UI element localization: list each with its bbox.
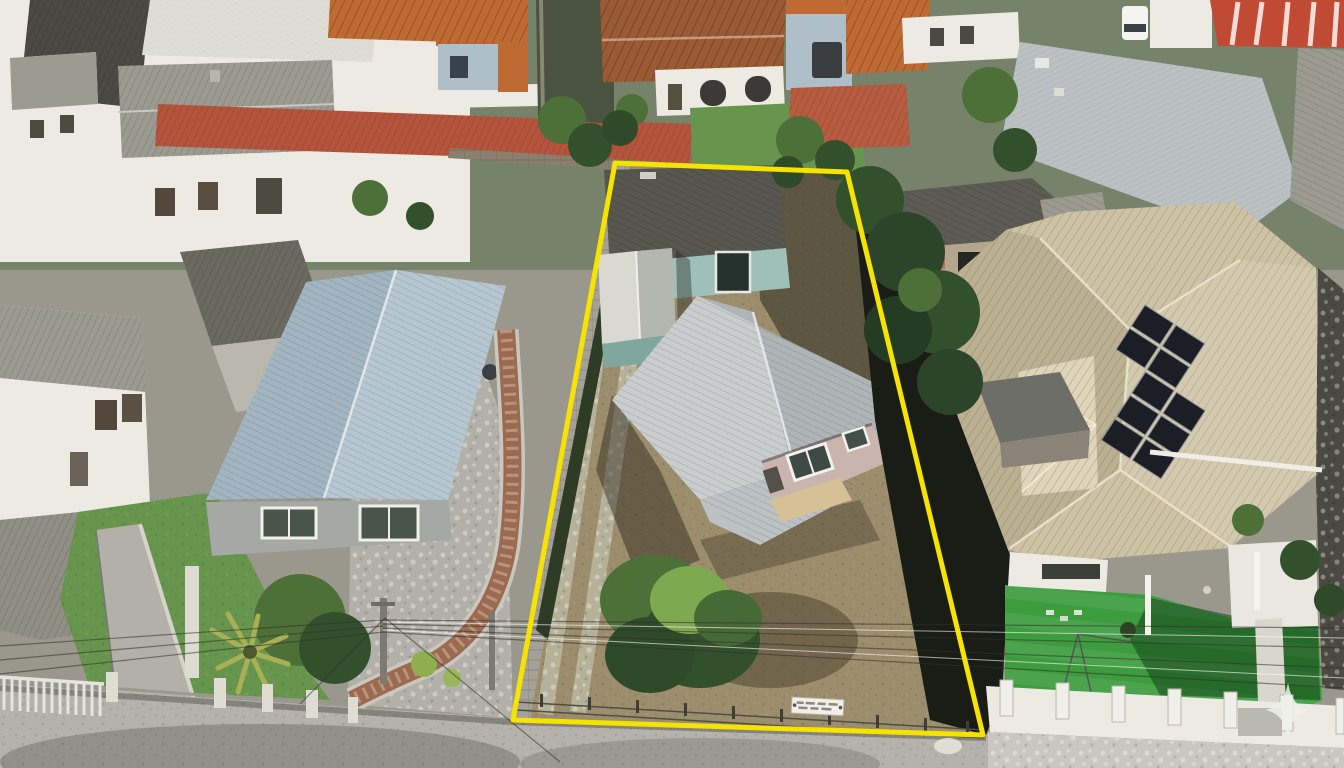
orange-roof-side	[498, 42, 528, 92]
tree	[962, 67, 1018, 123]
porch-plant	[1232, 504, 1264, 536]
side-walkway	[1255, 618, 1286, 706]
aerial-photo	[0, 0, 1344, 768]
shed-roof-lit	[598, 251, 640, 344]
chimney	[1035, 58, 1049, 68]
door	[70, 452, 88, 486]
satellite-dish	[482, 364, 498, 380]
small-pet	[1203, 586, 1211, 594]
window	[960, 26, 974, 44]
tall-gate-pillar	[185, 566, 199, 678]
rear-house-roof	[604, 165, 786, 264]
parked-vehicle	[812, 42, 842, 78]
left-house-window	[360, 506, 418, 540]
window	[256, 178, 282, 214]
window	[450, 56, 468, 78]
bush	[406, 202, 434, 230]
white-van	[1122, 6, 1148, 40]
fence-sign	[791, 697, 844, 716]
window	[30, 120, 44, 138]
utility-pole	[380, 598, 387, 684]
porch-column	[1254, 552, 1260, 610]
window	[155, 188, 175, 216]
garden-tree	[1280, 540, 1320, 580]
bush	[352, 180, 388, 216]
stone-wall-line	[541, 0, 543, 118]
chimney	[210, 70, 220, 82]
shed-roof-shade	[636, 248, 676, 340]
rear-house-door	[716, 252, 750, 292]
plant-ball	[1120, 622, 1136, 638]
left-house-window	[262, 508, 316, 538]
arched-window	[700, 80, 726, 106]
gray-roofs-right-edge	[1290, 48, 1344, 230]
small-gray-roof	[10, 52, 98, 110]
roof-patch	[640, 172, 656, 179]
orange-gable-roof	[436, 0, 528, 46]
pole-crossarm	[371, 602, 395, 606]
door	[668, 84, 682, 110]
window	[930, 28, 944, 46]
van-windshield	[1124, 24, 1146, 32]
orange-roof	[328, 0, 455, 42]
far-left-gray-roof	[0, 305, 146, 392]
window	[122, 394, 142, 422]
roof-vent	[1054, 88, 1064, 96]
window	[60, 115, 74, 133]
tree	[993, 128, 1037, 172]
bush	[411, 651, 437, 677]
window	[95, 400, 117, 430]
white-object	[934, 738, 962, 754]
window	[198, 182, 218, 210]
aerial-photo-canvas	[0, 0, 1344, 768]
window-band	[1042, 564, 1100, 579]
arched-window	[745, 76, 771, 102]
white-yard	[1150, 0, 1212, 48]
